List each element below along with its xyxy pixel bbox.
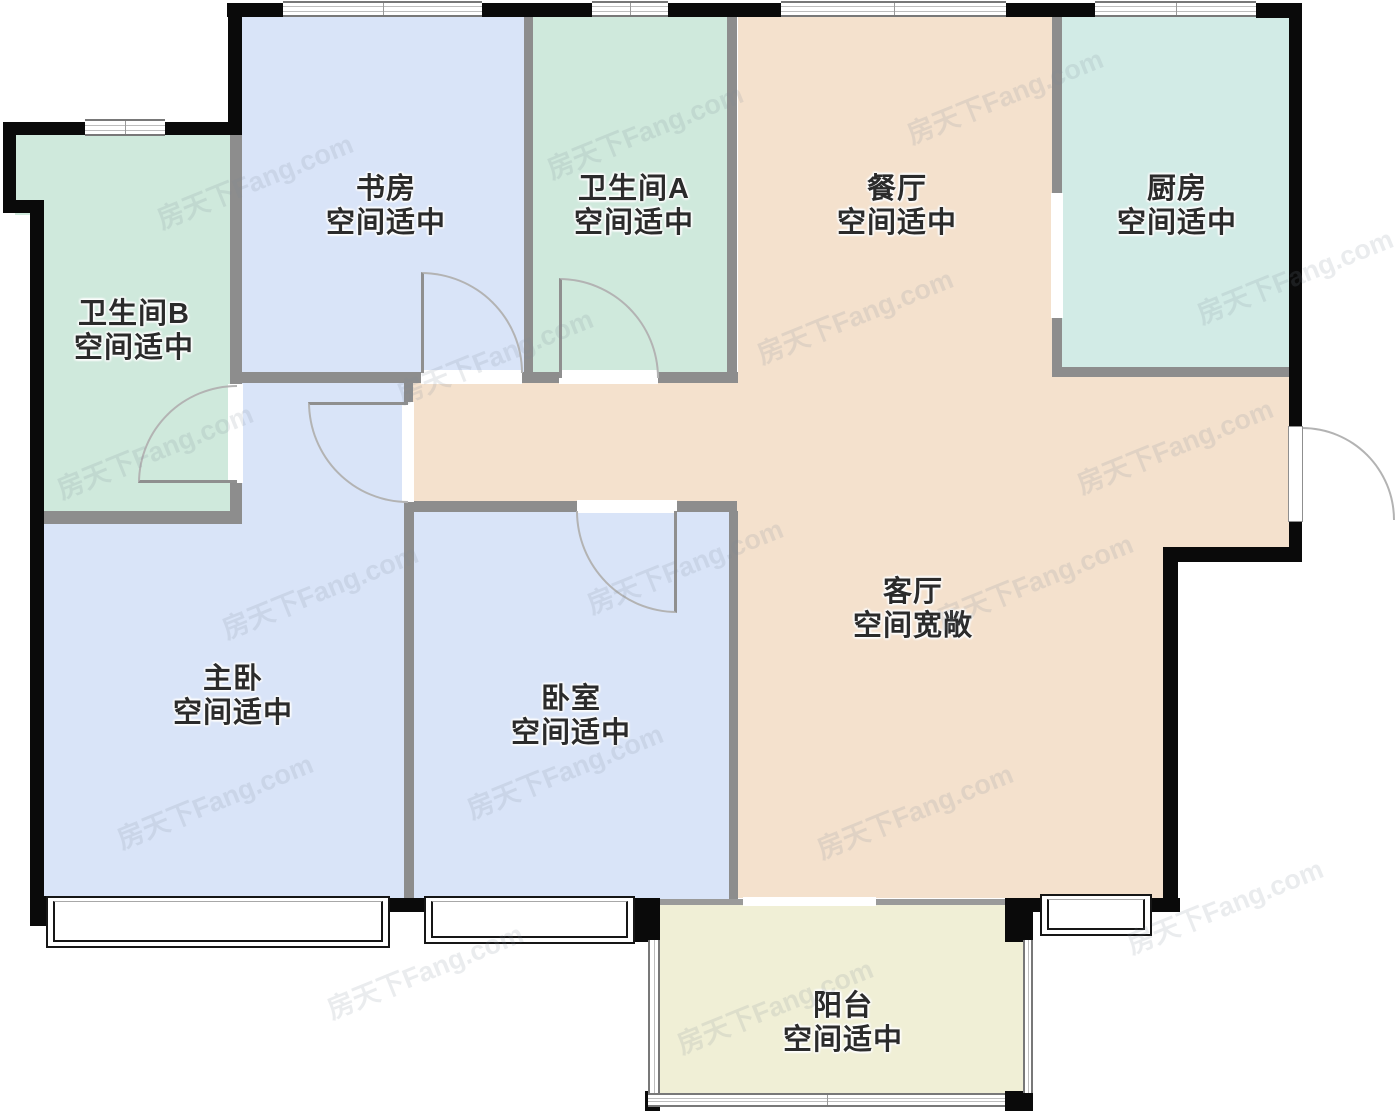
room-name: 卧室	[461, 682, 681, 716]
window-living-bottom	[1040, 894, 1152, 936]
room-name: 餐厅	[787, 172, 1007, 206]
room-label-bathroom-b: 卫生间B 空间适中	[24, 297, 244, 365]
room-label-balcony: 阳台 空间适中	[733, 989, 953, 1057]
balcony-post-top-right	[1005, 898, 1033, 942]
floor-hallway	[407, 377, 740, 511]
room-label-dining: 餐厅 空间适中	[787, 172, 1007, 240]
room-name: 卫生间B	[24, 297, 244, 331]
wall-top	[1006, 3, 1095, 17]
room-name: 客厅	[803, 575, 1023, 609]
balcony-post-top-left	[633, 898, 660, 942]
wall-hallway-bedroom	[407, 501, 737, 512]
balcony-glazing-right	[1023, 940, 1033, 1093]
room-name: 阳台	[733, 989, 953, 1023]
room-note: 空间适中	[123, 696, 343, 730]
wall-between-bays	[388, 898, 428, 912]
window-kitchen-top	[1095, 1, 1256, 17]
wall-kitchen-bottom	[1052, 367, 1292, 377]
wall-right-lower	[1163, 562, 1178, 912]
room-label-master-bedroom: 主卧 空间适中	[123, 662, 343, 730]
room-note: 空间适中	[276, 206, 496, 240]
wall-bathroomB-bottom	[44, 511, 242, 524]
wall-left-jog	[3, 200, 44, 213]
room-note: 空间适中	[1067, 206, 1287, 240]
floor-bathroom-b	[15, 130, 242, 215]
balcony-glazing-bottom	[648, 1093, 1005, 1107]
window-bathroomB-top	[85, 119, 165, 136]
bay-window-master-bedroom	[46, 896, 390, 948]
room-note: 空间适中	[524, 206, 744, 240]
room-name: 主卧	[123, 662, 343, 696]
room-name: 厨房	[1067, 172, 1287, 206]
room-note: 空间适中	[787, 206, 1007, 240]
wall-bedroom-living	[729, 511, 738, 900]
room-name: 书房	[276, 172, 496, 206]
bay-window-bedroom	[424, 896, 635, 944]
wall-top	[482, 3, 592, 17]
room-note: 空间适中	[24, 331, 244, 365]
window-study-top	[283, 1, 482, 17]
balcony-glazing-left	[648, 940, 660, 1093]
window-bathroomA-top	[592, 1, 668, 17]
room-label-bathroom-a: 卫生间A 空间适中	[524, 172, 744, 240]
door-arc-entry	[1302, 427, 1395, 520]
floor-entry	[1056, 372, 1289, 549]
room-label-study: 书房 空间适中	[276, 172, 496, 240]
room-label-living: 客厅 空间宽敞	[803, 575, 1023, 643]
wall-study-left-upper	[228, 3, 242, 133]
wall-dining-kitchen-lower	[1052, 318, 1062, 374]
wall-top	[668, 3, 781, 17]
room-label-bedroom: 卧室 空间适中	[461, 682, 681, 750]
room-note: 空间适中	[733, 1023, 953, 1057]
wall-right-below-door	[1289, 521, 1302, 549]
room-note: 空间适中	[461, 716, 681, 750]
opening-balcony	[743, 897, 876, 906]
wall-entry-step	[1163, 547, 1302, 562]
wall-right-upper	[1289, 3, 1302, 427]
wall-dining-kitchen-upper	[1052, 17, 1062, 193]
window-dining-top	[781, 1, 1006, 17]
room-label-kitchen: 厨房 空间适中	[1067, 172, 1287, 240]
wall-master-bedroom-divider	[404, 511, 414, 900]
room-name: 卫生间A	[524, 172, 744, 206]
door-leaf-entry	[1288, 426, 1303, 522]
room-note: 空间宽敞	[803, 609, 1023, 643]
floorplan-canvas: 书房 空间适中 卫生间A 空间适中 餐厅 空间适中 厨房 空间适中 卫生间B 空…	[0, 0, 1400, 1111]
balcony-post-bottom-right	[1005, 1091, 1033, 1111]
opening-kitchen	[1051, 193, 1063, 318]
wall-bathroomB-top	[3, 122, 85, 135]
